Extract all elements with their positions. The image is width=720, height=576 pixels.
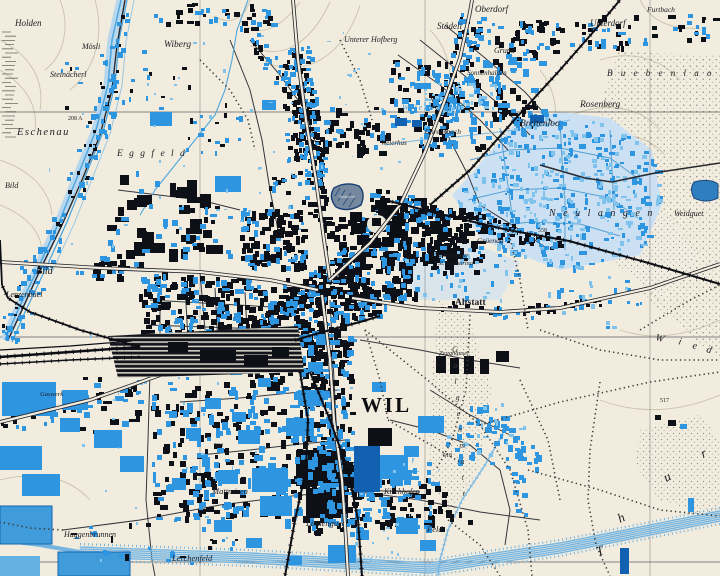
svg-text:Unterdorf: Unterdorf [590, 18, 627, 28]
svg-text:m: m [459, 441, 465, 450]
svg-text:Grüenau: Grüenau [477, 236, 504, 245]
svg-text:Eschenau: Eschenau [16, 127, 70, 138]
svg-text:Kirchhofen: Kirchhofen [383, 487, 420, 496]
svg-text:Haggenbrunnen: Haggenbrunnen [63, 530, 116, 539]
svg-text:Bild: Bild [36, 266, 54, 277]
svg-text:Chrebsbach: Chrebsbach [425, 127, 461, 136]
svg-text:Holden: Holden [14, 18, 42, 28]
svg-text:e: e [457, 409, 461, 418]
svg-text:517: 517 [660, 398, 669, 404]
svg-text:518: 518 [443, 453, 452, 459]
svg-text:Stadtweier: Stadtweier [339, 194, 357, 199]
svg-text:Feld: Feld [426, 524, 443, 534]
svg-text:558: 558 [538, 228, 547, 234]
svg-text:a: a [460, 457, 464, 466]
svg-text:Oberdorf: Oberdorf [475, 4, 510, 14]
svg-text:Grund: Grund [494, 46, 516, 55]
svg-text:Steinächerl: Steinächerl [50, 70, 87, 79]
svg-text:Lenzenbüel: Lenzenbüel [5, 290, 43, 299]
svg-text:g: g [456, 393, 460, 402]
svg-text:Mösli: Mösli [81, 42, 100, 51]
svg-text:Sonnenhalden: Sonnenhalden [467, 69, 507, 77]
svg-text:Weierhus: Weierhus [381, 139, 407, 147]
svg-text:Altstatt: Altstatt [455, 298, 486, 308]
svg-text:Mattmisen: Mattmisen [211, 486, 248, 496]
svg-text:a: a [453, 361, 457, 370]
svg-text:G: G [452, 345, 458, 354]
svg-text:Wiberg: Wiberg [164, 40, 191, 50]
svg-text:208 A: 208 A [68, 116, 83, 122]
svg-text:B u e b e n l a o: B u e b e n l a o [607, 68, 715, 78]
svg-text:N e u l a n g e n: N e u l a n g e n [548, 208, 655, 219]
svg-text:Unterer Hofberg: Unterer Hofberg [344, 35, 397, 44]
svg-text:Wilerwasen: Wilerwasen [402, 103, 459, 112]
svg-text:584: 584 [214, 443, 223, 449]
svg-text:Frauenkloster: Frauenkloster [431, 252, 469, 259]
svg-text:Städeli: Städeli [437, 21, 462, 31]
svg-text:Gaswerk: Gaswerk [40, 391, 63, 398]
svg-text:St. Katharina: St. Katharina [438, 260, 473, 267]
svg-text:E g g f e l d: E g g f e l d [116, 148, 187, 159]
svg-text:Lindenguet: Lindenguet [305, 518, 345, 528]
svg-text:Rosenberg: Rosenberg [579, 100, 621, 110]
svg-text:Furtbach: Furtbach [646, 5, 675, 14]
svg-text:Bild: Bild [5, 181, 19, 190]
svg-text:Lerchenfeld: Lerchenfeld [171, 553, 213, 563]
svg-text:Weidguet: Weidguet [674, 209, 704, 218]
svg-text:n: n [458, 425, 462, 434]
svg-text:Breitenloo: Breitenloo [520, 119, 560, 129]
svg-text:WIL: WIL [361, 393, 412, 417]
